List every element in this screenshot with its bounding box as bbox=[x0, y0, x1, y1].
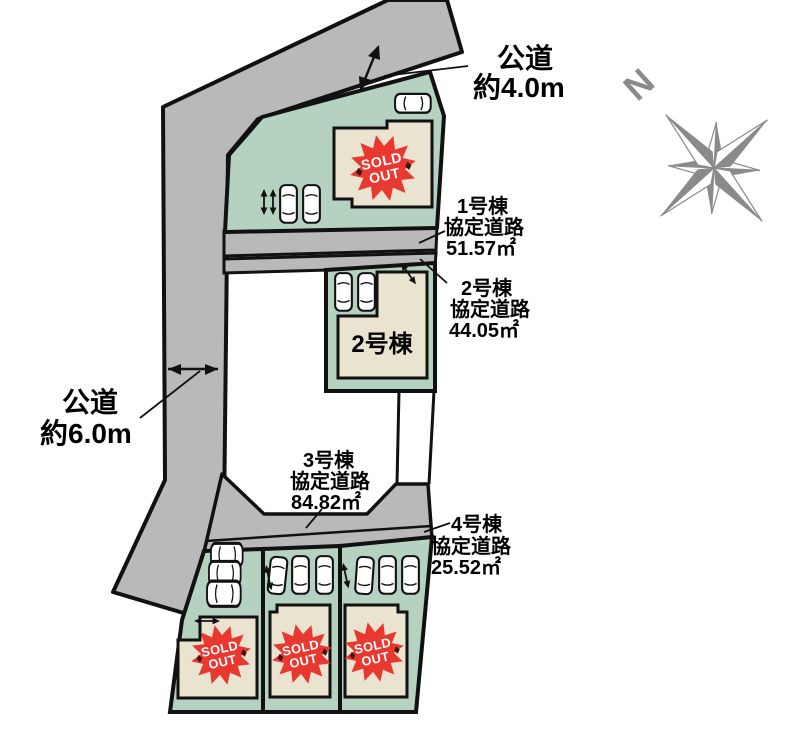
car-icon bbox=[316, 556, 333, 594]
car-icon bbox=[280, 185, 297, 223]
car-icon bbox=[207, 581, 241, 606]
car-icon bbox=[358, 273, 375, 311]
car-icon bbox=[292, 556, 309, 594]
corridor-left-border bbox=[397, 391, 399, 484]
car-icon bbox=[395, 94, 431, 113]
car-icon bbox=[335, 273, 352, 311]
site-plan: SOLD OUT SOLD OUT SOLD OUT SOLD OUT bbox=[0, 0, 800, 740]
car-icon bbox=[355, 557, 374, 595]
building-unit2-label: 2号棟 bbox=[351, 331, 413, 358]
car-icon bbox=[402, 556, 419, 594]
car-icon bbox=[303, 185, 320, 223]
car-icon bbox=[379, 556, 396, 594]
